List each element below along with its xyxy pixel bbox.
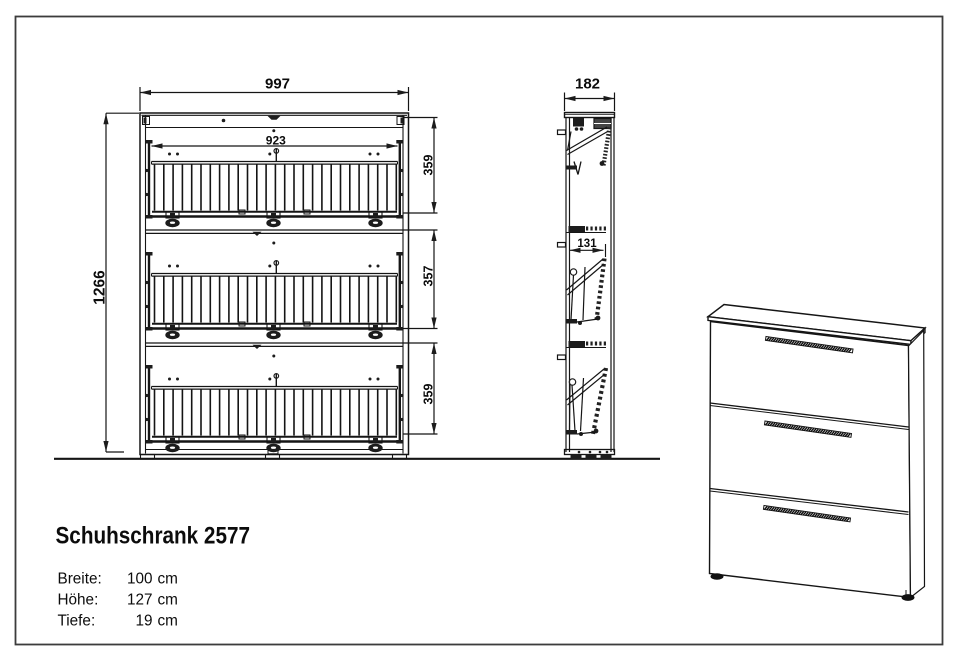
svg-text:359: 359 (422, 384, 436, 405)
svg-text:Schuhschrank 2577: Schuhschrank 2577 (56, 523, 251, 550)
svg-text:127: 127 (127, 592, 153, 609)
svg-text:923: 923 (266, 134, 286, 148)
svg-text:100: 100 (127, 571, 153, 588)
svg-text:Breite:: Breite: (58, 571, 102, 588)
svg-text:cm: cm (158, 613, 178, 630)
svg-text:182: 182 (575, 76, 600, 93)
svg-text:cm: cm (158, 571, 178, 588)
svg-text:131: 131 (577, 238, 597, 250)
svg-text:359: 359 (422, 155, 436, 176)
svg-text:19: 19 (135, 613, 152, 630)
svg-text:997: 997 (265, 76, 290, 93)
svg-text:1266: 1266 (92, 270, 109, 305)
svg-text:cm: cm (158, 592, 178, 609)
svg-text:Tiefe:: Tiefe: (58, 613, 96, 630)
svg-text:Höhe:: Höhe: (58, 592, 99, 609)
svg-text:357: 357 (422, 266, 436, 287)
